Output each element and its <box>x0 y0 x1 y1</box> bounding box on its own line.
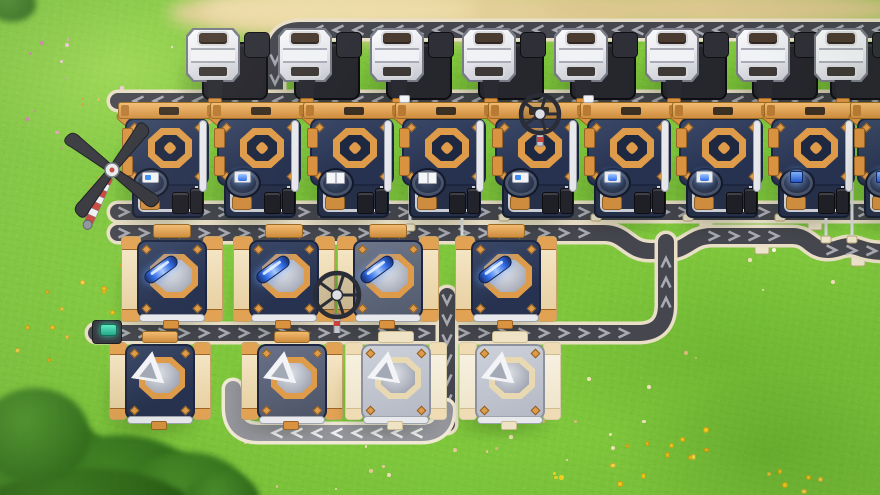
corner-stud <box>254 245 264 255</box>
hatch-ring <box>794 128 838 168</box>
vent-stack <box>357 192 374 214</box>
item-slot <box>322 168 352 188</box>
item-slot <box>869 168 880 188</box>
item-blue-capsule <box>254 253 292 286</box>
item-slot <box>691 168 721 188</box>
item-blue-capsule <box>476 253 514 286</box>
arm-slot <box>251 107 271 115</box>
side-pipe <box>291 120 299 192</box>
motor-block <box>510 196 530 210</box>
corner-stud <box>527 245 537 255</box>
arm-end <box>675 105 683 116</box>
side-pipe <box>753 120 761 192</box>
item-blue-device <box>696 171 713 183</box>
arm-end <box>398 105 406 116</box>
side-tower <box>429 342 447 420</box>
container-hatch <box>827 33 855 44</box>
item-slot <box>474 258 518 282</box>
vent-stack <box>634 192 651 214</box>
side-plate <box>214 128 225 148</box>
container-base-block <box>872 32 880 58</box>
input-arm <box>487 224 525 238</box>
container-body <box>186 28 240 82</box>
item-slot <box>783 168 813 188</box>
vent-stack <box>560 188 573 214</box>
container-body <box>736 28 790 82</box>
item-blue-device <box>234 171 251 183</box>
corner-stud <box>193 245 203 255</box>
container-hatch <box>658 33 686 44</box>
arm-slot <box>805 107 825 115</box>
container-body <box>645 28 699 82</box>
item-slot <box>599 168 629 188</box>
corner-stud <box>142 304 152 314</box>
side-pipe <box>199 120 207 192</box>
motor-block <box>694 196 714 210</box>
turbine-blade <box>113 168 161 210</box>
container-base-block <box>336 32 362 58</box>
item-on-belt <box>583 95 594 103</box>
arm-end <box>853 105 861 116</box>
item-slot <box>264 350 304 384</box>
assembler-machine[interactable] <box>770 106 858 224</box>
item-white-panel <box>418 172 437 184</box>
container-body <box>278 28 332 82</box>
item-slot <box>132 350 172 384</box>
side-plate <box>854 156 865 176</box>
corner-stud <box>130 406 140 416</box>
shaper-machine[interactable] <box>112 336 208 428</box>
hatch-ring <box>425 128 469 168</box>
vent-stack <box>375 188 388 214</box>
item-white-triangle <box>263 349 301 384</box>
fabricator-machine[interactable] <box>458 230 554 328</box>
item-blue-device <box>604 171 621 183</box>
side-pipe <box>384 120 392 192</box>
vent-stack <box>282 188 295 214</box>
motor-block <box>232 196 252 210</box>
motor-block <box>786 196 806 210</box>
item-white-device <box>512 172 529 183</box>
container-vent <box>291 67 319 76</box>
side-tower <box>543 342 561 420</box>
container-base-block <box>428 32 454 58</box>
input-arm <box>265 224 303 238</box>
container-base-block <box>244 32 270 58</box>
vent-stack <box>542 192 559 214</box>
corner-stud <box>313 406 323 416</box>
belt-connector <box>163 320 179 329</box>
corner-stud <box>366 406 376 416</box>
side-pipe <box>476 120 484 192</box>
item-slot <box>507 168 537 188</box>
hatch-ring <box>610 128 654 168</box>
container-stripe <box>819 48 863 63</box>
item-white-triangle <box>131 349 169 384</box>
arm-end <box>583 105 591 116</box>
belt-connector <box>151 421 167 430</box>
item-slot <box>229 168 259 188</box>
corner-stud <box>358 245 368 255</box>
corner-stud <box>417 406 427 416</box>
item-blue-capsule <box>142 253 180 286</box>
turbine-rotor-icon <box>502 76 578 152</box>
container-vent <box>383 67 411 76</box>
corner-stud <box>313 349 323 359</box>
belt-connector <box>501 421 517 430</box>
corner-stud <box>531 349 541 359</box>
hatch-ring <box>333 128 377 168</box>
assembler-machine[interactable] <box>586 106 674 224</box>
side-pipe <box>661 120 669 192</box>
corner-stud <box>531 406 541 416</box>
vent-stack <box>744 188 757 214</box>
storage-container[interactable] <box>370 28 456 110</box>
motor-block <box>872 196 880 210</box>
container-vent <box>749 67 777 76</box>
belt-connector <box>379 320 395 329</box>
input-arm <box>274 331 310 343</box>
container-stripe <box>375 48 419 63</box>
vent-stack <box>652 188 665 214</box>
storage-container[interactable] <box>278 28 364 110</box>
container-body <box>814 28 868 82</box>
motor-block <box>602 196 622 210</box>
corner-stud <box>480 406 490 416</box>
input-arm <box>210 102 310 119</box>
input-arm <box>492 331 528 343</box>
container-hatch <box>291 33 319 44</box>
item-slot <box>414 168 444 188</box>
side-plate <box>584 128 595 148</box>
arm-slot <box>344 107 364 115</box>
side-plate <box>399 128 410 148</box>
item-white-panel <box>326 172 345 184</box>
corner-stud <box>254 304 264 314</box>
container-hatch <box>475 33 503 44</box>
storage-container[interactable] <box>645 28 731 110</box>
assembler-machine[interactable] <box>309 106 397 224</box>
input-arm <box>378 331 414 343</box>
side-plate <box>768 156 779 176</box>
container-base-block <box>703 32 729 58</box>
input-arm <box>850 102 880 119</box>
side-plate <box>214 156 225 176</box>
arm-end <box>213 105 221 116</box>
side-plate <box>768 128 779 148</box>
side-plate <box>676 128 687 148</box>
container-stripe <box>650 48 694 63</box>
item-white-triangle <box>481 349 519 384</box>
input-arm <box>142 331 178 343</box>
item-slot <box>368 350 408 384</box>
shaper-machine[interactable] <box>348 336 444 428</box>
corner-stud <box>193 304 203 314</box>
vent-stack <box>818 192 835 214</box>
corner-stud <box>476 245 486 255</box>
container-body <box>370 28 424 82</box>
arm-end <box>306 105 314 116</box>
corner-stud <box>142 245 152 255</box>
container-stripe <box>191 48 235 63</box>
corner-stud <box>181 349 191 359</box>
belt-end-device[interactable] <box>92 320 122 344</box>
motor-block <box>325 196 345 210</box>
container-stripe <box>283 48 327 63</box>
item-on-belt <box>399 95 410 103</box>
container-vent <box>827 67 855 76</box>
arm-slot <box>621 107 641 115</box>
container-hatch <box>383 33 411 44</box>
side-plate <box>307 156 318 176</box>
side-plate <box>676 156 687 176</box>
arm-end <box>491 105 499 116</box>
corner-stud <box>305 245 315 255</box>
input-arm <box>369 224 407 238</box>
vent-stack <box>449 192 466 214</box>
container-base-block <box>520 32 546 58</box>
side-tower <box>193 342 211 420</box>
assembler-machine[interactable] <box>678 106 766 224</box>
item-blue-cube <box>876 171 880 183</box>
arm-slot <box>436 107 456 115</box>
shaper-machine[interactable] <box>244 336 340 428</box>
corner-stud <box>262 406 272 416</box>
belt-connector <box>275 320 291 329</box>
assembler-machine[interactable] <box>401 106 489 224</box>
input-arm <box>303 102 403 119</box>
belt-connector <box>387 421 403 430</box>
side-plate <box>399 156 410 176</box>
hatch-ring <box>240 128 284 168</box>
corner-stud <box>409 304 419 314</box>
container-hatch <box>749 33 777 44</box>
container-hatch <box>199 33 227 44</box>
arm-slot <box>713 107 733 115</box>
item-slot <box>482 350 522 384</box>
turbine-rotor-icon <box>37 95 187 245</box>
container-body <box>554 28 608 82</box>
container-base-block <box>612 32 638 58</box>
vent-stack <box>190 188 203 214</box>
item-slot <box>140 258 184 282</box>
side-plate <box>307 128 318 148</box>
corner-stud <box>476 304 486 314</box>
container-hatch <box>567 33 595 44</box>
motor-block <box>417 196 437 210</box>
storage-container[interactable] <box>186 28 272 110</box>
container-stripe <box>741 48 785 63</box>
container-stripe <box>559 48 603 63</box>
corner-stud <box>181 406 191 416</box>
corner-stud <box>417 349 427 359</box>
item-slot <box>252 258 296 282</box>
input-arm <box>672 102 772 119</box>
arm-end <box>767 105 775 116</box>
input-arm <box>580 102 680 119</box>
vent-stack <box>264 192 281 214</box>
pole-foot <box>821 236 831 243</box>
shaper-machine[interactable] <box>462 336 558 428</box>
input-arm <box>395 102 495 119</box>
container-stripe <box>467 48 511 63</box>
vent-stack <box>726 192 743 214</box>
assembler-machine[interactable] <box>856 106 880 224</box>
item-blue-cube <box>790 171 803 183</box>
pole-foot <box>847 236 857 243</box>
hatch-ring <box>702 128 746 168</box>
storage-container[interactable] <box>814 28 880 110</box>
side-plate <box>584 156 595 176</box>
turbine-blade <box>63 130 111 172</box>
container-vent <box>475 67 503 76</box>
vent-stack <box>467 188 480 214</box>
game-viewport[interactable] <box>0 0 880 495</box>
turbine-blade <box>110 121 152 169</box>
side-plate <box>854 128 865 148</box>
container-vent <box>658 67 686 76</box>
container-vent <box>567 67 595 76</box>
corner-stud <box>409 245 419 255</box>
item-white-triangle <box>367 349 405 384</box>
container-vent <box>199 67 227 76</box>
belt-connector <box>497 320 513 329</box>
belt-connector <box>283 421 299 430</box>
container-body <box>462 28 516 82</box>
side-plate <box>492 156 503 176</box>
turbine-rotor-icon <box>299 257 375 333</box>
corner-stud <box>527 304 537 314</box>
assembler-machine[interactable] <box>216 106 304 224</box>
